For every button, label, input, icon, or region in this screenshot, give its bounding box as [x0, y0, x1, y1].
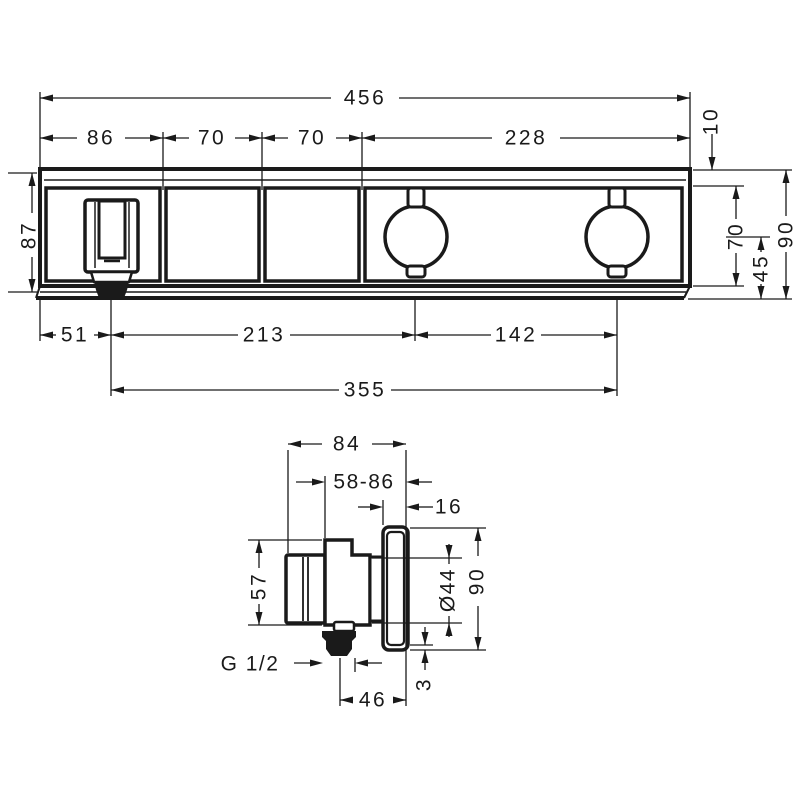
- handle-left-top-tab: [408, 188, 424, 207]
- side-dim-sleeve-diameter: Ø44: [437, 568, 460, 612]
- side-dim-escutcheon-height: 90: [466, 567, 489, 595]
- technical-drawing-page: 456 86 70 70 228 10 87 70 45 90: [0, 0, 800, 800]
- front-dim-segment-4: 228: [505, 127, 548, 150]
- front-dim-handle-spacing: 142: [495, 324, 538, 347]
- front-dim-segment-2: 70: [198, 127, 226, 150]
- front-dim-total-height: 90: [775, 220, 798, 248]
- side-dim-edge-gap: 3: [413, 677, 436, 691]
- front-dim-outlet-to-handle2: 355: [344, 379, 387, 402]
- side-dim-thread-size: G 1/2: [221, 653, 280, 676]
- front-dim-top-edge: 10: [700, 107, 723, 135]
- front-dim-module-height: 87: [18, 221, 41, 249]
- valve-mid-block: [325, 540, 370, 625]
- side-dim-escutcheon-thickness: 16: [435, 496, 463, 519]
- valve-back-block: [286, 555, 325, 623]
- side-dim-install-depth-range: 58-86: [333, 471, 394, 494]
- front-view-panel: [36, 169, 690, 298]
- front-dim-segment-3: 70: [298, 127, 326, 150]
- handle-right-bottom-tab: [608, 266, 626, 277]
- side-dim-projection: 46: [359, 689, 387, 712]
- front-dim-outlet-offset: 51: [61, 324, 89, 347]
- handle-right-top-tab: [609, 188, 625, 207]
- side-view-body: [286, 527, 408, 656]
- side-dim-body-height: 57: [248, 572, 271, 600]
- front-dim-segment-1: 86: [87, 127, 115, 150]
- outlet-nut: [94, 282, 129, 298]
- dimension-drawing: 456 86 70 70 228 10 87 70 45 90: [0, 0, 800, 800]
- front-dim-inner-height: 70: [725, 222, 748, 250]
- outlet-neck: [91, 272, 132, 282]
- front-dim-handle-center-height: 45: [750, 254, 773, 282]
- handle-left-bottom-tab: [407, 266, 425, 277]
- side-dim-depth: 84: [333, 433, 361, 456]
- front-dim-outlet-to-handle1: 213: [243, 324, 286, 347]
- outlet-collar: [334, 622, 354, 631]
- front-dim-total-width: 456: [344, 87, 387, 110]
- valve-sleeve: [370, 557, 383, 621]
- thread-nut: [322, 631, 356, 656]
